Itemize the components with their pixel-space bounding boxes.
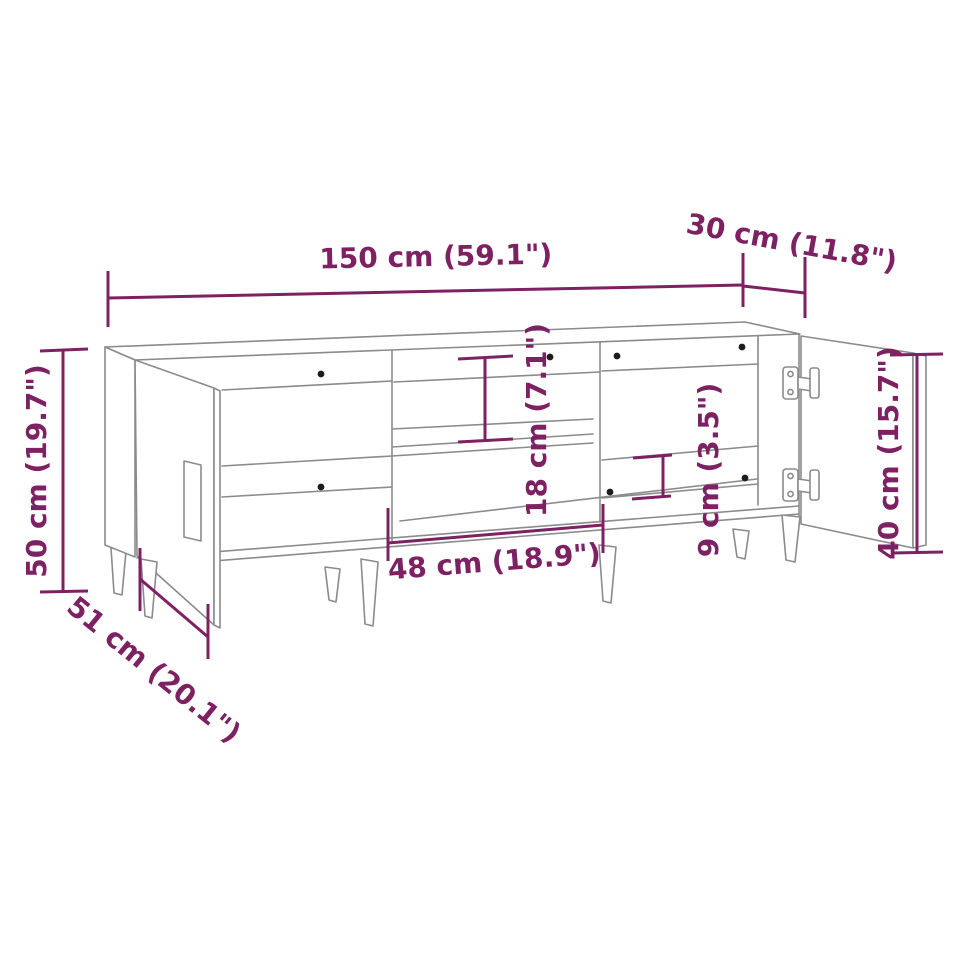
top-rail-left xyxy=(222,381,392,390)
bottom-rail-left-top xyxy=(222,456,392,466)
dimension-tick xyxy=(632,496,671,499)
leg xyxy=(733,529,749,559)
hinge-cup-plate xyxy=(810,470,819,500)
bottom-rail-right-top xyxy=(602,446,758,460)
dimension-label-bottom-rail-height: 9 cm (3.5") xyxy=(692,383,725,558)
dimension-overall-height: 50 cm (19.7") xyxy=(20,349,88,592)
dimension-tick xyxy=(633,455,672,458)
right-door-edge-thickness xyxy=(913,353,926,548)
tv-stand-drawing xyxy=(105,322,926,628)
diagram-canvas: 150 cm (59.1") 30 cm (11.8") 50 cm (19.7… xyxy=(0,0,955,955)
leg xyxy=(111,548,126,595)
dimension-line xyxy=(108,285,743,298)
leg xyxy=(361,559,378,626)
fitting-dot xyxy=(318,371,325,378)
fitting-dot xyxy=(614,353,621,360)
dimension-shelf-compartment-height: 18 cm (7.1") xyxy=(458,323,553,517)
fitting-dot xyxy=(607,489,614,496)
dimension-line xyxy=(743,286,805,293)
dimension-depth: 30 cm (11.8") xyxy=(684,207,900,318)
leg xyxy=(782,515,800,562)
dimension-label-overall-height: 50 cm (19.7") xyxy=(20,364,53,578)
hinge-cup-plate xyxy=(810,368,819,398)
middle-shelf-back-edge xyxy=(392,419,593,429)
leg xyxy=(599,545,616,603)
fitting-dot xyxy=(318,484,325,491)
dimension-bottom-rail-height: 9 cm (3.5") xyxy=(632,383,725,558)
dimension-label-shelf-compartment-height: 18 cm (7.1") xyxy=(520,323,553,517)
top-rail-right xyxy=(602,364,758,371)
left-side-panel xyxy=(105,347,135,557)
dimension-label-depth: 30 cm (11.8") xyxy=(684,207,900,278)
furniture-dimension-diagram: 150 cm (59.1") 30 cm (11.8") 50 cm (19.7… xyxy=(0,0,955,955)
dimension-label-overall-width: 150 cm (59.1") xyxy=(319,238,553,276)
bottom-rail-right-bottom xyxy=(602,484,758,498)
top-panel xyxy=(105,322,800,360)
right-door-open xyxy=(801,336,926,548)
fitting-dot xyxy=(739,344,746,351)
left-door-edge-thickness xyxy=(214,388,220,628)
dimension-label-door-height: 40 cm (15.7") xyxy=(872,346,905,560)
dimension-overall-width: 150 cm (59.1") xyxy=(108,238,743,327)
fitting-dot xyxy=(742,475,749,482)
door-handle xyxy=(184,461,201,541)
top-rail-middle xyxy=(394,372,600,382)
leg xyxy=(325,567,340,602)
bottom-rail-left-bottom xyxy=(222,487,392,497)
